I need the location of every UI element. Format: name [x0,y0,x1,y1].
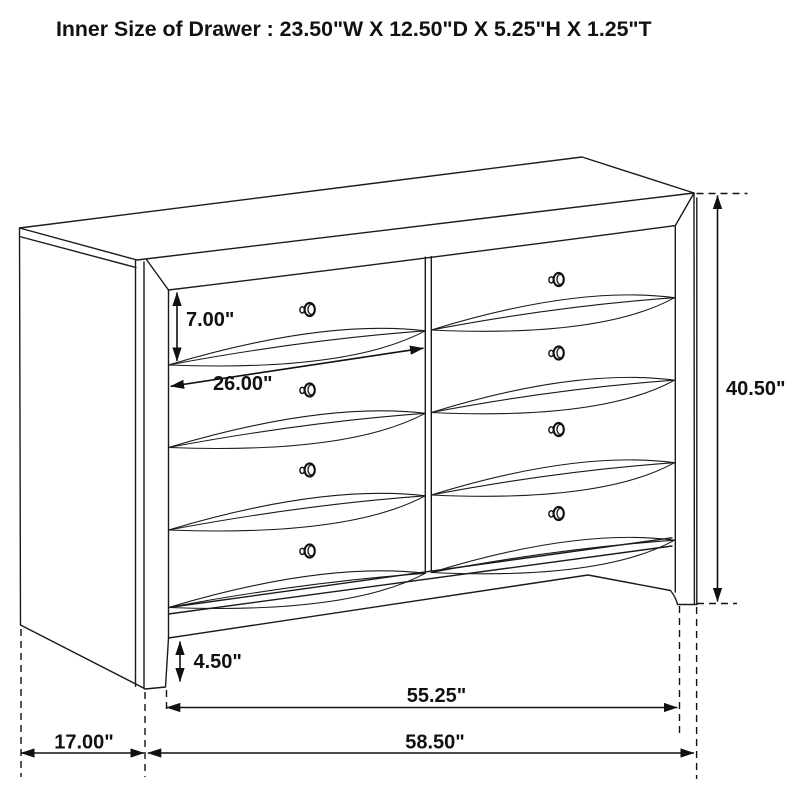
svg-text:Inner Size of Drawer : 23.50"W: Inner Size of Drawer : 23.50"W X 12.50"D… [56,17,652,41]
svg-text:7.00": 7.00" [186,309,234,331]
svg-text:58.50": 58.50" [405,732,465,754]
svg-text:26.00": 26.00" [213,373,273,395]
svg-text:4.50": 4.50" [194,651,242,673]
svg-text:17.00": 17.00" [54,732,114,754]
svg-text:55.25": 55.25" [407,685,467,707]
svg-text:40.50": 40.50" [726,378,786,400]
